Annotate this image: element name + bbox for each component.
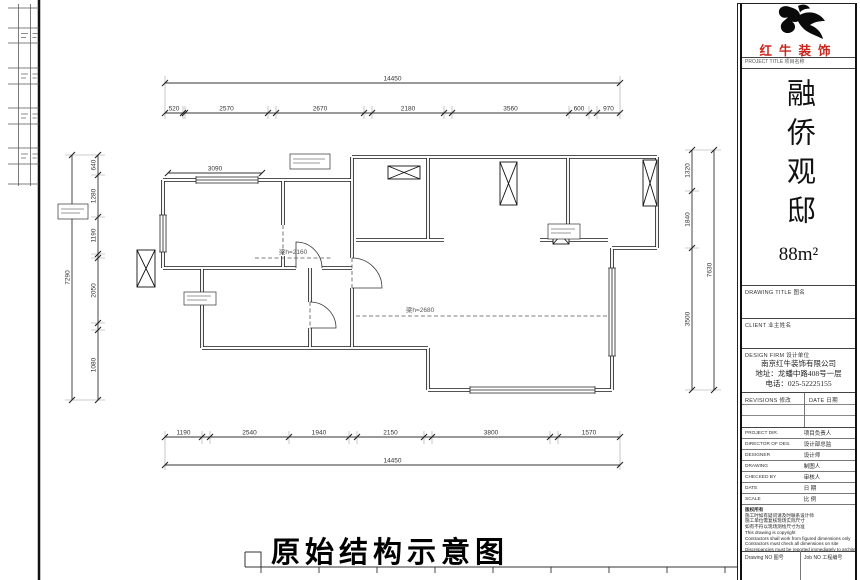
titleblock-row: DRAWING制图人 xyxy=(742,461,855,472)
firm-name: 南京红牛装饰有限公司 xyxy=(742,359,855,369)
row-label-zh: 比 例 xyxy=(804,495,817,503)
redbull-logo-icon xyxy=(770,4,828,40)
dim-label: 2570 xyxy=(219,106,234,113)
job-no-label: Job NO 工程编号 xyxy=(804,554,842,561)
drawing-title: 原始结构示意图 xyxy=(250,529,530,571)
windows xyxy=(159,176,616,394)
row-label-en: DIRECTOR OF DES. xyxy=(742,442,804,447)
row-label-zh: 日 期 xyxy=(804,484,817,492)
row-label-en: DATE xyxy=(742,486,804,491)
firm-address: 地址：龙蟠中路408号一层 xyxy=(742,369,855,379)
revisions-date-label: DATE 日期 xyxy=(806,394,858,404)
flue-box xyxy=(500,162,517,205)
dim-label: 520 xyxy=(169,106,180,113)
dim-label: 2050 xyxy=(91,283,98,298)
dimension-labels: 14450 520 2570 2670 2180 3560 600 970 30… xyxy=(65,76,714,465)
row-label-zh: 制图人 xyxy=(804,462,821,470)
annotation-box xyxy=(58,204,88,219)
firm-phone: 电话：025-52225155 xyxy=(742,379,855,389)
beam-labels: 梁h=2160 梁h=2680 xyxy=(279,247,435,314)
titleblock-row: DIRECTOR OF DES.设计部总监 xyxy=(742,439,855,450)
dim-label: 1940 xyxy=(312,430,327,437)
dim-label: 2670 xyxy=(313,106,328,113)
dim-left-overall: 7290 xyxy=(65,270,72,285)
project-name: 融侨观邸 xyxy=(778,78,820,234)
dim-label: 3800 xyxy=(484,430,499,437)
titleblock-row: DATE日 期 xyxy=(742,483,855,494)
row-label-en: CHECKED BY xyxy=(742,475,804,480)
flue-box xyxy=(137,250,155,287)
titleblock-border-outer xyxy=(737,3,738,580)
annotation-box xyxy=(548,224,580,239)
row-label-en: PROJECT DIR. xyxy=(742,431,804,436)
titleblock-row: CHECKED BY审核人 xyxy=(742,472,855,483)
project-name-block: 融侨观邸 88m² xyxy=(742,78,855,266)
bottom-cells-divider xyxy=(800,551,801,580)
witness-lines xyxy=(65,76,721,470)
dim-label: 1280 xyxy=(91,188,98,203)
beam-label: 梁h=2160 xyxy=(279,247,308,256)
client-label: CLIENT 业主姓名 xyxy=(742,319,858,329)
dimension-chain-lines xyxy=(72,83,714,465)
dim-label: 2540 xyxy=(242,430,257,437)
dim-top-overall: 14450 xyxy=(383,76,401,83)
row-label-zh: 设计部总监 xyxy=(804,440,832,448)
dim-label: 640 xyxy=(91,159,98,170)
dim-label: 2150 xyxy=(383,430,398,437)
row-label-en: SCALE xyxy=(742,497,804,502)
row-label-en: DRAWING xyxy=(742,464,804,469)
flue-box xyxy=(388,166,420,179)
design-firm-label: DESIGN FIRM 设计单位 xyxy=(742,349,858,359)
dim-label: 3560 xyxy=(503,106,518,113)
floor-plan-canvas: 14450 520 2570 2670 2180 3560 600 970 30… xyxy=(0,0,860,580)
titleblock-row: PROJECT DIR.项目负责人 xyxy=(742,428,855,439)
flue-box xyxy=(643,160,657,206)
drawing-no-label: Drawing NO 图号 xyxy=(745,554,784,561)
dim-label: 1190 xyxy=(177,430,191,437)
dim-right-overall: 7630 xyxy=(707,262,714,277)
dim-label: 1190 xyxy=(91,228,98,242)
dim-label: 1320 xyxy=(685,163,692,178)
revisions-label: REVISIONS 修改 xyxy=(742,394,807,404)
dim-label: 2180 xyxy=(401,106,416,113)
dim-interior: 3090 xyxy=(208,166,223,173)
drawing-title-label: DRAWING TITLE 图名 xyxy=(742,286,858,296)
titleblock-row: SCALE比 例 xyxy=(742,494,855,505)
dim-label: 3500 xyxy=(685,311,692,326)
dimension-ticks xyxy=(69,80,717,468)
row-label-en: DESIGNER xyxy=(742,453,804,458)
titleblock-row: DESIGNER设计师 xyxy=(742,450,855,461)
dim-label: 600 xyxy=(574,106,585,113)
left-margin-strip xyxy=(8,0,39,580)
dim-label: 1840 xyxy=(685,212,692,227)
project-title-label: PROJECT TITLE 项目名称 xyxy=(742,58,858,65)
annotation-box xyxy=(290,154,330,169)
annotation-box xyxy=(184,292,216,305)
row-label-zh: 项目负责人 xyxy=(804,429,832,437)
row-label-zh: 设计师 xyxy=(804,451,821,459)
project-area: 88m² xyxy=(779,244,818,266)
dim-label: 970 xyxy=(603,106,614,113)
dim-label: 1570 xyxy=(582,430,597,437)
beam-label: 梁h=2680 xyxy=(406,305,435,314)
titleblock-notes: 版权所有 施工时如有疑问请及时联系设计师 施工单位需复核现场实际尺寸 如有不符以… xyxy=(742,507,855,553)
revisions-column-divider xyxy=(804,393,805,427)
walls xyxy=(163,157,657,390)
row-label-zh: 审核人 xyxy=(804,473,821,481)
greeked-text xyxy=(21,34,38,159)
dim-label: 1080 xyxy=(91,357,98,372)
dim-bottom-overall: 14450 xyxy=(383,458,401,465)
cad-sheet: { "plan": { "title": "原始结构示意图", "dims": … xyxy=(0,0,860,580)
